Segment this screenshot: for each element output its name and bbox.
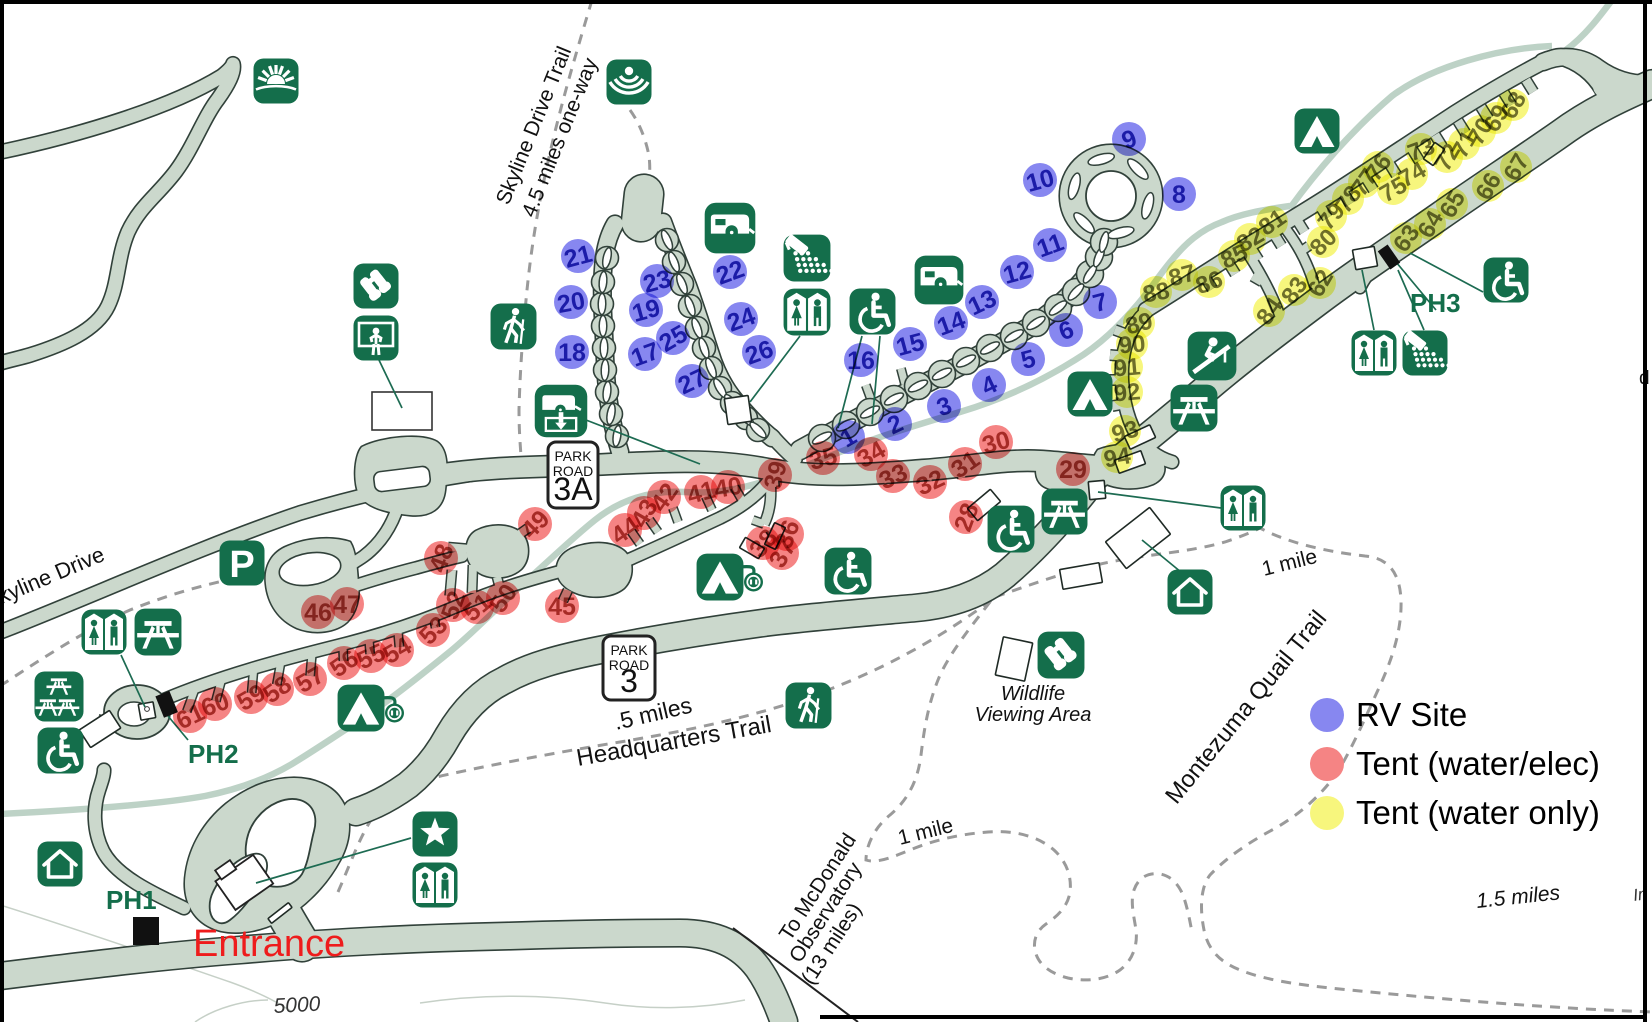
svg-text:PH3: PH3 (1410, 288, 1461, 318)
svg-text:Viewing Area: Viewing Area (975, 704, 1092, 726)
svg-text:Tent (water/elec): Tent (water/elec) (1356, 745, 1600, 782)
svg-text:92: 92 (1113, 378, 1142, 407)
svg-text:Tent (water only): Tent (water only) (1356, 794, 1600, 831)
svg-text:20: 20 (555, 287, 587, 319)
svg-text:3: 3 (620, 663, 638, 699)
svg-text:5000: 5000 (273, 993, 321, 1018)
svg-text:PARK: PARK (554, 448, 592, 464)
svg-text:94: 94 (1102, 442, 1134, 473)
svg-text:45: 45 (548, 593, 576, 621)
svg-text:Entrance: Entrance (193, 923, 345, 965)
svg-text:PH1: PH1 (106, 885, 157, 915)
svg-text:PH2: PH2 (188, 739, 239, 769)
svg-text:PARK: PARK (610, 642, 648, 658)
svg-text:P: P (229, 544, 254, 586)
svg-text:47: 47 (333, 591, 361, 619)
svg-text:8: 8 (1172, 181, 1186, 209)
svg-text:88: 88 (1141, 277, 1172, 308)
svg-text:46: 46 (304, 599, 332, 627)
svg-text:Wildlife: Wildlife (1001, 683, 1065, 705)
svg-text:16: 16 (847, 347, 875, 375)
svg-text:18: 18 (558, 339, 586, 367)
svg-text:3A: 3A (553, 471, 593, 507)
svg-text:RV Site: RV Site (1356, 696, 1467, 733)
svg-text:29: 29 (1059, 456, 1087, 484)
